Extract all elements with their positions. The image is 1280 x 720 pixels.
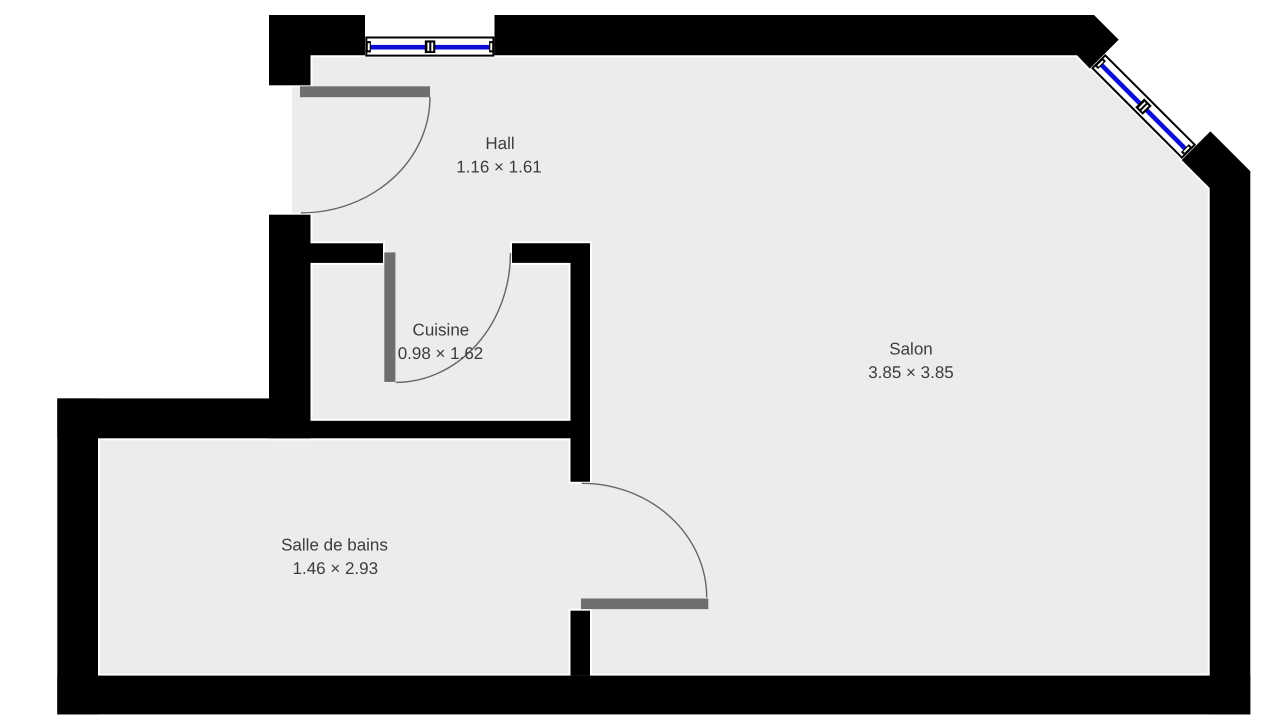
svg-text:1.16 × 1.61: 1.16 × 1.61 <box>456 158 542 177</box>
svg-text:Salle de bains: Salle de bains <box>281 535 388 554</box>
svg-text:Salon: Salon <box>889 339 932 358</box>
svg-text:Hall: Hall <box>485 134 514 153</box>
svg-text:0.98 × 1.62: 0.98 × 1.62 <box>398 344 484 363</box>
svg-text:3.85 × 3.85: 3.85 × 3.85 <box>868 363 954 382</box>
svg-text:1.46 × 2.93: 1.46 × 2.93 <box>293 559 379 578</box>
svg-text:Cuisine: Cuisine <box>413 321 470 340</box>
